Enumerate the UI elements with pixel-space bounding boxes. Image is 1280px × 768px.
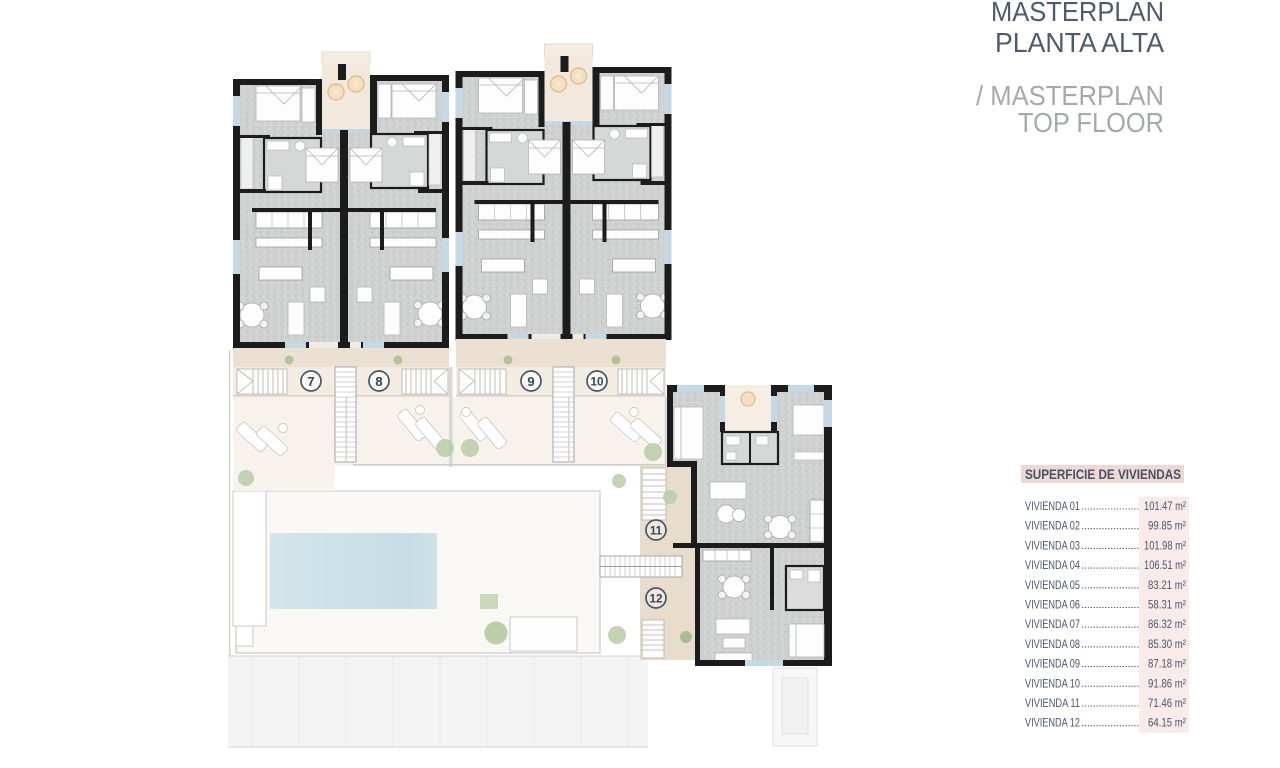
svg-text:101.98 m²: 101.98 m² (1144, 538, 1186, 552)
svg-text:VIVIENDA 10: VIVIENDA 10 (1025, 676, 1080, 690)
svg-text:64.15 m²: 64.15 m² (1148, 716, 1186, 730)
svg-text:83.21 m²: 83.21 m² (1148, 578, 1186, 592)
svg-text:VIVIENDA 02: VIVIENDA 02 (1025, 519, 1080, 533)
svg-text:58.31 m²: 58.31 m² (1148, 598, 1186, 612)
svg-text:VIVIENDA 08: VIVIENDA 08 (1025, 637, 1080, 651)
svg-text:11: 11 (650, 524, 662, 538)
svg-text:101.47 m²: 101.47 m² (1144, 499, 1186, 513)
svg-text:7: 7 (307, 374, 314, 389)
svg-text:VIVIENDA 09: VIVIENDA 09 (1025, 657, 1080, 671)
svg-text:87.18 m²: 87.18 m² (1148, 657, 1186, 671)
svg-text:SUPERFICIE DE VIVIENDAS: SUPERFICIE DE VIVIENDAS (1025, 466, 1181, 482)
svg-text:99.85 m²: 99.85 m² (1148, 519, 1186, 533)
svg-text:VIVIENDA 01: VIVIENDA 01 (1025, 499, 1080, 513)
svg-text:TOP FLOOR: TOP FLOOR (1018, 107, 1164, 138)
svg-text:8: 8 (375, 374, 382, 389)
svg-text:VIVIENDA 12: VIVIENDA 12 (1025, 716, 1080, 730)
svg-text:106.51 m²: 106.51 m² (1144, 558, 1186, 572)
svg-text:71.46 m²: 71.46 m² (1148, 696, 1186, 710)
svg-text:9: 9 (527, 374, 534, 389)
svg-text:86.32 m²: 86.32 m² (1148, 617, 1186, 631)
svg-text:85.30 m²: 85.30 m² (1148, 637, 1186, 651)
svg-text:PLANTA ALTA: PLANTA ALTA (995, 27, 1164, 58)
svg-text:VIVIENDA 04: VIVIENDA 04 (1025, 558, 1080, 572)
svg-text:VIVIENDA 03: VIVIENDA 03 (1025, 538, 1080, 552)
svg-text:10: 10 (591, 375, 604, 389)
svg-text:VIVIENDA 06: VIVIENDA 06 (1025, 598, 1080, 612)
svg-text:VIVIENDA 11: VIVIENDA 11 (1025, 696, 1080, 710)
svg-text:VIVIENDA 05: VIVIENDA 05 (1025, 578, 1080, 592)
svg-text:VIVIENDA 07: VIVIENDA 07 (1025, 617, 1080, 631)
svg-text:MASTERPLAN: MASTERPLAN (991, 0, 1164, 27)
svg-text:91.86 m²: 91.86 m² (1148, 676, 1186, 690)
svg-text:12: 12 (650, 592, 663, 606)
